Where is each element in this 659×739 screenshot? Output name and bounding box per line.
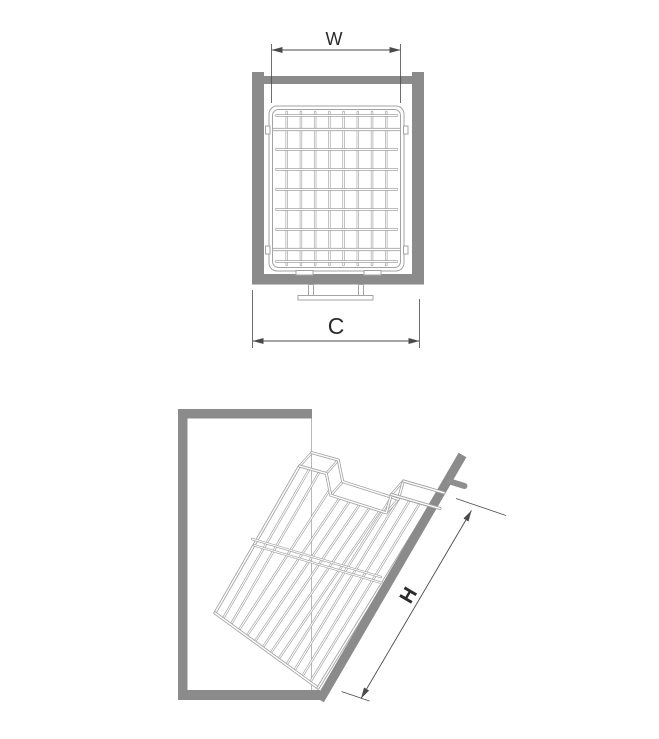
cabinet-top-edge: [178, 409, 312, 419]
upper-rim-end: [403, 481, 444, 493]
basket-side-clip: [266, 126, 271, 134]
basket-side-clip: [266, 246, 271, 254]
dimension-label-h: H: [396, 584, 422, 608]
door-mounting-peg: [450, 482, 465, 487]
basket-side-clip: [404, 126, 409, 134]
w-dimension: W: [272, 29, 401, 103]
technical-drawing-page: W C H: [0, 0, 659, 739]
door-panel: [316, 453, 466, 703]
slide-bracket: [298, 285, 373, 301]
basket-foot: [364, 271, 381, 276]
wire-basket-technical-drawing: W C H: [0, 0, 659, 739]
cabinet-left-panel: [252, 72, 264, 274]
dimension-label-c: C: [328, 313, 345, 339]
basket-front: [266, 106, 409, 275]
rim-connector-post: [326, 460, 338, 474]
bracket-plate: [298, 296, 373, 301]
bracket-post: [359, 285, 364, 296]
cabinet-right-panel: [412, 72, 424, 274]
rim-connector-post: [331, 482, 343, 496]
cabinet-bottom-panel: [252, 274, 424, 285]
basket-foot: [296, 271, 313, 276]
cabinet-bottom-edge: [178, 690, 320, 700]
basket-tilted: [215, 453, 434, 688]
h-extension-line-top: [456, 499, 506, 516]
tilted-view-figure: H: [178, 409, 506, 702]
cabinet-back-panel: [178, 409, 188, 700]
basket-side-clip: [404, 246, 409, 254]
h-extension-line-bottom: [342, 692, 370, 702]
rim-connector-post: [300, 453, 312, 466]
basket-rod: [286, 500, 390, 665]
bracket-post: [309, 285, 314, 296]
front-view-figure: W C: [252, 29, 424, 348]
dimension-label-w: W: [326, 29, 343, 49]
cabinet-top-rail: [264, 76, 412, 84]
